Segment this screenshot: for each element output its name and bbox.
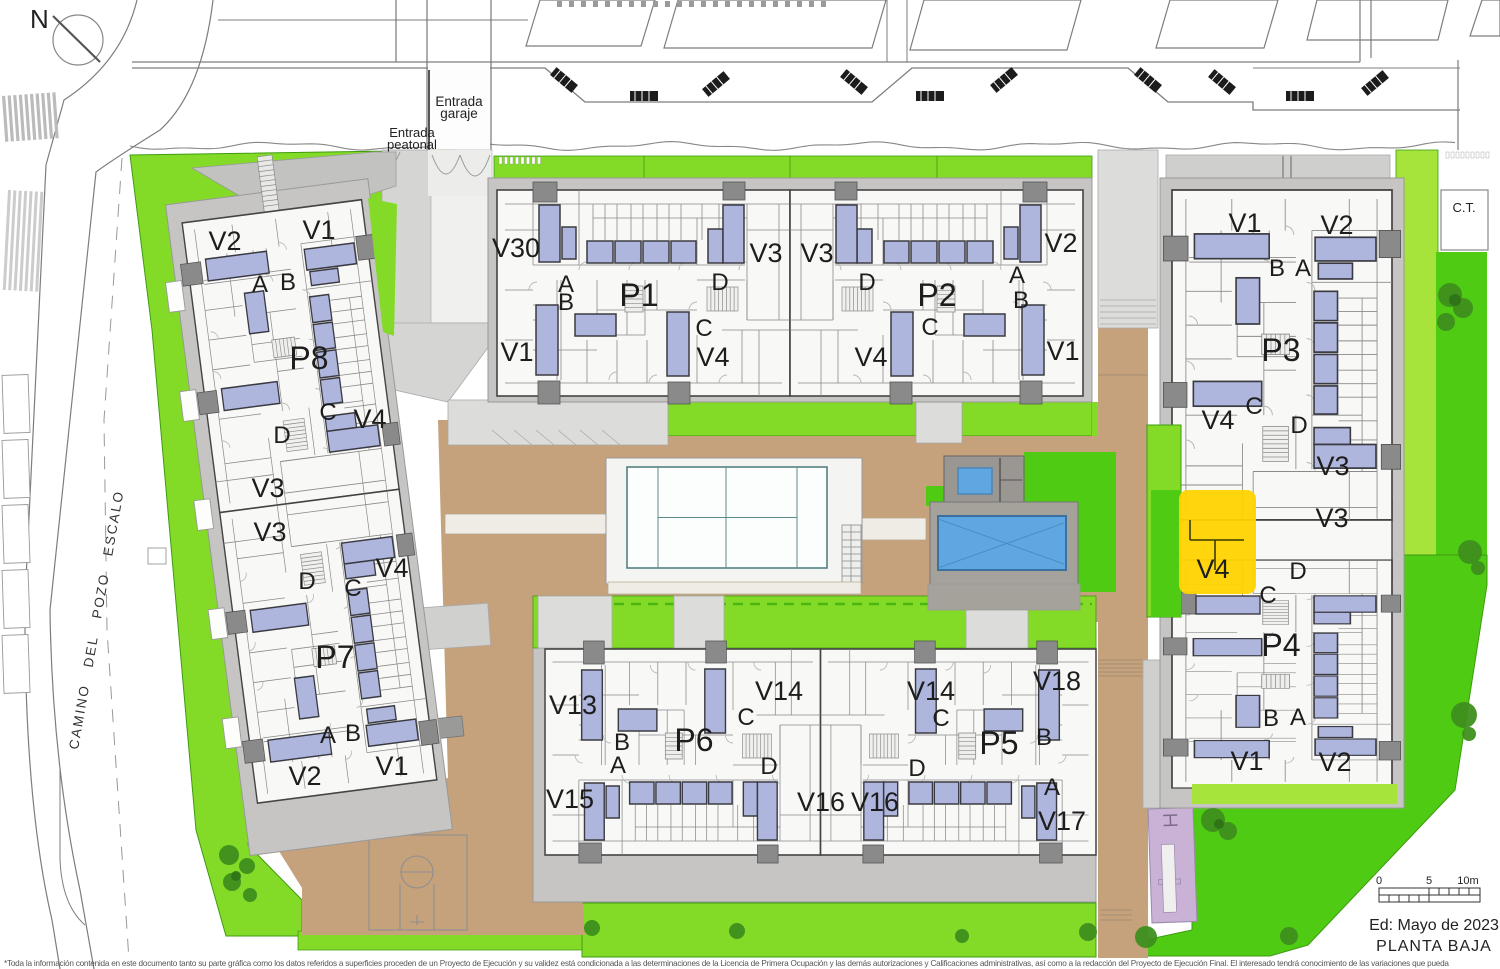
svg-text:A: A — [1290, 704, 1306, 731]
svg-text:A: A — [1295, 255, 1311, 282]
svg-text:P6: P6 — [674, 722, 713, 758]
svg-text:V15: V15 — [546, 784, 594, 814]
svg-text:V3: V3 — [253, 517, 286, 547]
svg-text:D: D — [298, 568, 315, 595]
svg-text:V3: V3 — [1316, 451, 1349, 481]
svg-text:P3: P3 — [1261, 332, 1300, 368]
svg-text:peatonal: peatonal — [387, 137, 437, 152]
svg-text:V30: V30 — [492, 233, 540, 263]
svg-text:A: A — [1009, 262, 1025, 289]
svg-text:V16: V16 — [851, 787, 899, 817]
svg-text:V14: V14 — [755, 676, 803, 706]
svg-text:V13: V13 — [549, 690, 597, 720]
svg-text:D: D — [908, 755, 925, 782]
svg-text:V4: V4 — [1196, 554, 1229, 584]
svg-text:V1: V1 — [1228, 208, 1261, 238]
svg-text:10m: 10m — [1457, 875, 1478, 887]
svg-text:B: B — [345, 720, 361, 747]
svg-text:P8: P8 — [289, 340, 328, 376]
svg-text:C: C — [344, 575, 361, 602]
svg-text:D: D — [1289, 558, 1306, 585]
svg-text:P4: P4 — [1261, 627, 1300, 663]
svg-text:P7: P7 — [315, 639, 354, 675]
svg-text:V3: V3 — [749, 238, 782, 268]
svg-text:A: A — [1044, 774, 1060, 801]
svg-text:V2: V2 — [1318, 747, 1351, 777]
svg-text:B: B — [1263, 705, 1279, 732]
svg-text:V1: V1 — [375, 751, 408, 781]
svg-text:C: C — [1259, 582, 1276, 609]
svg-text:A: A — [610, 752, 626, 779]
svg-text:PLANTA BAJA: PLANTA BAJA — [1376, 938, 1492, 955]
svg-text:C: C — [737, 704, 754, 731]
svg-text:V4: V4 — [696, 342, 729, 372]
svg-text:C: C — [921, 314, 938, 341]
svg-text:V3: V3 — [800, 238, 833, 268]
svg-text:D: D — [1290, 412, 1307, 439]
svg-text:P5: P5 — [979, 725, 1018, 761]
svg-text:D: D — [858, 269, 875, 296]
svg-text:D: D — [273, 422, 290, 449]
svg-text:V2: V2 — [1044, 228, 1077, 258]
svg-text:P2: P2 — [917, 277, 956, 313]
svg-text:P1: P1 — [619, 277, 658, 313]
svg-text:B: B — [280, 269, 296, 296]
svg-text:V3: V3 — [251, 473, 284, 503]
svg-text:C: C — [695, 315, 712, 342]
svg-text:V1: V1 — [1046, 336, 1079, 366]
svg-text:D: D — [711, 269, 728, 296]
svg-text:N: N — [30, 4, 49, 34]
svg-text:V18: V18 — [1033, 666, 1081, 696]
svg-text:B: B — [558, 289, 574, 316]
svg-text:V16: V16 — [797, 787, 845, 817]
svg-text:V1: V1 — [500, 337, 533, 367]
svg-text:V2: V2 — [1320, 210, 1353, 240]
svg-text:B: B — [1036, 724, 1052, 751]
svg-text:V4: V4 — [375, 553, 408, 583]
svg-text:V3: V3 — [1315, 503, 1348, 533]
svg-text:V1: V1 — [1230, 746, 1263, 776]
svg-text:V17: V17 — [1038, 806, 1086, 836]
svg-text:Ed: Mayo de 2023: Ed: Mayo de 2023 — [1369, 917, 1499, 934]
svg-text:B: B — [1269, 255, 1285, 282]
svg-text:C: C — [1245, 393, 1262, 420]
svg-text:V2: V2 — [208, 226, 241, 256]
svg-text:V4: V4 — [1201, 405, 1234, 435]
svg-text:V4: V4 — [353, 404, 386, 434]
svg-text:A: A — [320, 722, 336, 749]
svg-text:V14: V14 — [907, 676, 955, 706]
svg-text:garaje: garaje — [440, 106, 478, 121]
svg-text:C.T.: C.T. — [1452, 200, 1475, 215]
svg-text:5: 5 — [1426, 875, 1432, 887]
svg-text:V1: V1 — [302, 215, 335, 245]
svg-text:C: C — [319, 399, 336, 426]
svg-text:D: D — [760, 753, 777, 780]
svg-text:V4: V4 — [854, 342, 887, 372]
svg-text:V2: V2 — [288, 761, 321, 791]
svg-text:B: B — [1013, 287, 1029, 314]
svg-text:0: 0 — [1376, 875, 1382, 887]
svg-text:A: A — [252, 271, 268, 298]
svg-text:C: C — [932, 705, 949, 732]
svg-text:*Toda la información contenida: *Toda la información contenida en este d… — [4, 959, 1449, 968]
